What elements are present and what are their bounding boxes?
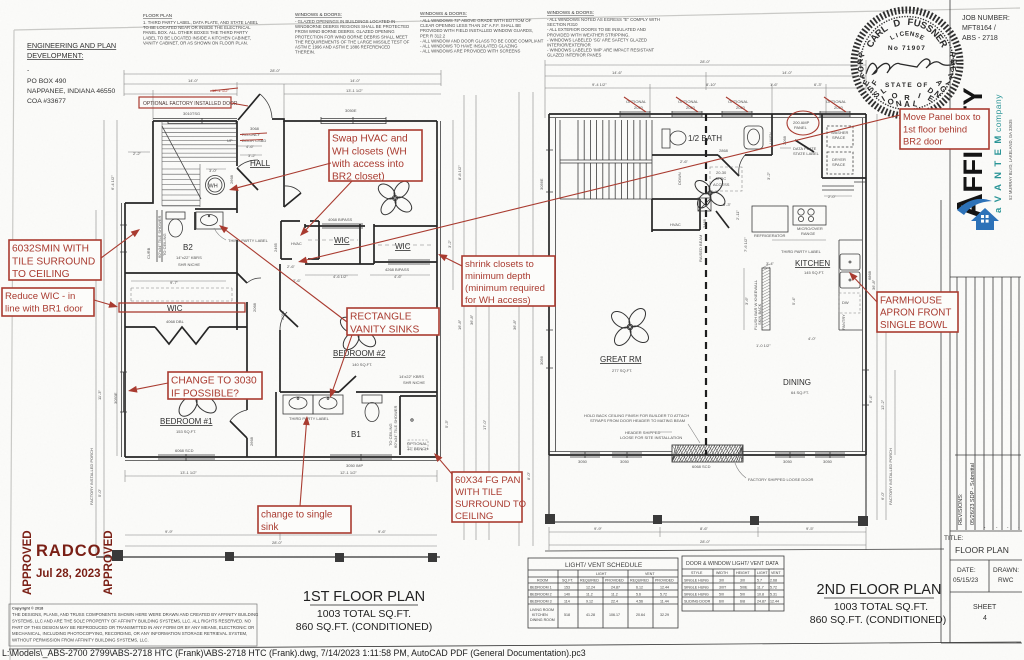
svg-text:20-30: 20-30 [716, 170, 727, 175]
svg-text:145 SQ.FT.: 145 SQ.FT. [804, 270, 824, 275]
svg-text:3/0: 3/0 [740, 579, 745, 583]
svg-text:4268 BIPASS: 4268 BIPASS [385, 267, 409, 272]
svg-text:6'-3": 6'-3" [814, 82, 823, 87]
svg-text:R: R [904, 93, 910, 102]
svg-text:3068: 3068 [250, 126, 260, 131]
svg-text:12'-1 1/2": 12'-1 1/2" [212, 88, 229, 93]
svg-text:LINEN: LINEN [768, 132, 773, 144]
svg-text:BEDROOM #1: BEDROOM #1 [160, 417, 213, 426]
svg-text:3'-6": 3'-6" [744, 296, 749, 305]
svg-text:MECHANICAL, INCLUDING PHOTOCOP: MECHANICAL, INCLUDING PHOTOCOPYING, RECO… [12, 631, 247, 636]
svg-text:6868: 6868 [867, 270, 872, 280]
svg-text:13'-1 1/2": 13'-1 1/2" [180, 470, 197, 475]
svg-text:3050 IMP: 3050 IMP [346, 463, 363, 468]
svg-text:line with BR1 door: line with BR1 door [5, 303, 84, 314]
svg-text:WH: WH [209, 184, 218, 190]
svg-text:2.68: 2.68 [770, 579, 777, 583]
svg-text:RWC: RWC [998, 577, 1014, 584]
svg-text:2668: 2668 [249, 436, 254, 446]
svg-text:8'-10": 8'-10" [706, 82, 717, 87]
svg-text:3'-2": 3'-2" [447, 239, 452, 248]
svg-text:SINGLE HUNG: SINGLE HUNG [684, 586, 709, 590]
svg-text:SQ.FT.: SQ.FT. [562, 579, 573, 583]
svg-text:3/0: 3/0 [719, 579, 724, 583]
svg-text:1'-6": 1'-6" [770, 82, 779, 87]
svg-text:6.12: 6.12 [636, 586, 643, 590]
svg-text:4: 4 [983, 615, 987, 622]
svg-text:DINING ROOM: DINING ROOM [530, 618, 555, 622]
svg-text:12.44: 12.44 [660, 586, 669, 590]
svg-text:*: * [858, 59, 862, 69]
svg-text:41.28: 41.28 [586, 613, 595, 617]
svg-text:3'-3": 3'-3" [723, 202, 732, 207]
svg-text:with access into: with access into [331, 159, 404, 170]
svg-text:JOB NUMBER:: JOB NUMBER: [962, 15, 1010, 22]
svg-text:9'-5": 9'-5" [806, 526, 815, 531]
svg-text:WITHOUT PERMISSION FROM AFFINI: WITHOUT PERMISSION FROM AFFINITY BUILDIN… [12, 638, 149, 643]
svg-text:860 SQ.FT. (CONDITIONED): 860 SQ.FT. (CONDITIONED) [296, 621, 433, 633]
svg-text:FARMHOUSE: FARMHOUSE [880, 295, 943, 306]
svg-text:4.56: 4.56 [636, 600, 643, 604]
svg-text:12'-1 1/2": 12'-1 1/2" [340, 470, 357, 475]
svg-text:CHANGE TO 3030: CHANGE TO 3030 [171, 376, 257, 387]
svg-text:6032SMIN WITH: 6032SMIN WITH [12, 244, 89, 255]
svg-text:STYLE: STYLE [691, 571, 703, 575]
svg-text:SHR NICHE: SHR NICHE [403, 380, 425, 385]
svg-text:3'-4": 3'-4" [766, 261, 775, 266]
svg-text:Reduce WIC - in: Reduce WIC - in [5, 291, 75, 302]
svg-text:8'-6": 8'-6" [700, 526, 709, 531]
svg-text:4'-6": 4'-6" [246, 144, 255, 149]
svg-text:13'-1 1/2": 13'-1 1/2" [346, 88, 363, 93]
svg-text:5.7: 5.7 [757, 579, 762, 583]
svg-text:SURROUND TO: SURROUND TO [455, 499, 526, 510]
svg-text:6068 SCD: 6068 SCD [175, 448, 194, 453]
svg-text:20.64: 20.64 [636, 613, 645, 617]
svg-text:sink: sink [261, 522, 279, 533]
svg-text:14'-0": 14'-0" [782, 70, 793, 75]
svg-text:14'-0": 14'-0" [350, 78, 361, 83]
svg-text:company: company [993, 94, 1003, 132]
svg-text:SLIDING DOOR: SLIDING DOOR [684, 600, 711, 604]
svg-text:IF POSSIBLE?: IF POSSIBLE? [171, 388, 239, 399]
svg-text:4068 BIPASS: 4068 BIPASS [328, 217, 352, 222]
svg-text:3050: 3050 [620, 459, 630, 464]
svg-text:RAISED BEAM: RAISED BEAM [698, 235, 703, 262]
svg-text:6/8: 6/8 [740, 600, 745, 604]
svg-text:BEDROOM 1: BEDROOM 1 [530, 586, 552, 590]
svg-text:HEIGHT: HEIGHT [736, 571, 750, 575]
svg-text:11'-3": 11'-3" [97, 390, 102, 400]
svg-text:L:\Models\_ABS-2700 2799\ABS-2: L:\Models\_ABS-2700 2799\ABS-2718 HTC (F… [2, 648, 586, 658]
svg-text:5'-4": 5'-4" [791, 296, 796, 305]
svg-text:16'-8": 16'-8" [457, 319, 462, 330]
svg-text:2068: 2068 [252, 302, 257, 312]
svg-text:WIC: WIC [334, 236, 350, 245]
svg-text:3056: 3056 [539, 355, 544, 365]
svg-text:2465: 2465 [273, 242, 278, 252]
svg-text:NAPPANEE, INDIANA 46550: NAPPANEE, INDIANA 46550 [27, 88, 115, 95]
svg-text:OPTIONAL: OPTIONAL [826, 99, 847, 104]
svg-text:1'-0 1/2": 1'-0 1/2" [756, 343, 771, 348]
svg-text:TO CEILING: TO CEILING [162, 233, 167, 256]
svg-text:9'-9": 9'-9" [594, 526, 603, 531]
svg-text:BEDROOM 3: BEDROOM 3 [530, 600, 552, 604]
svg-text:GLAZED INTERIOR PANES: GLAZED INTERIOR PANES [547, 53, 601, 58]
svg-text:3'-2": 3'-2" [766, 171, 771, 180]
svg-text:VENT: VENT [771, 571, 781, 575]
svg-text:WH closets (WH: WH closets (WH [332, 146, 407, 157]
svg-text:WIDTH: WIDTH [716, 571, 728, 575]
svg-text:05/15/23: 05/15/23 [953, 577, 979, 584]
svg-text:24.87: 24.87 [757, 600, 766, 604]
svg-text:THIRD PARTY LABEL: THIRD PARTY LABEL [781, 249, 822, 254]
svg-text:CURB: CURB [146, 247, 151, 259]
svg-text:APPROVED: APPROVED [22, 530, 34, 595]
svg-text:36'-8": 36'-8" [871, 279, 876, 290]
svg-text:3050E: 3050E [345, 108, 357, 113]
svg-text:CEILING: CEILING [455, 511, 493, 522]
svg-text:5.31: 5.31 [770, 593, 777, 597]
svg-text:5/0E: 5/0E [740, 586, 748, 590]
svg-text:LOOSE FOR SITE INSTALLATION: LOOSE FOR SITE INSTALLATION [620, 435, 682, 440]
svg-text:DW: DW [842, 300, 849, 305]
svg-text:VANITY SINKS: VANITY SINKS [350, 324, 419, 335]
svg-text:5'-0": 5'-0" [97, 488, 102, 497]
svg-text:11.44: 11.44 [660, 600, 669, 604]
svg-text:4'-0": 4'-0" [808, 336, 817, 341]
svg-text:REFRIGERATOR: REFRIGERATOR [754, 233, 786, 238]
svg-text:6/0: 6/0 [719, 600, 724, 604]
svg-text:12.44: 12.44 [770, 600, 779, 604]
svg-text:STATE LABEL: STATE LABEL [793, 151, 820, 156]
svg-text:3056E: 3056E [539, 178, 544, 190]
svg-text:2050: 2050 [280, 310, 285, 320]
svg-text:2668: 2668 [229, 174, 234, 184]
svg-text:28'-0": 28'-0" [700, 539, 711, 544]
svg-text:HVAC: HVAC [291, 241, 302, 246]
svg-text:14"x22" KBRS: 14"x22" KBRS [176, 255, 202, 260]
svg-text:B2: B2 [183, 243, 193, 252]
svg-text:17'-0": 17'-0" [482, 419, 487, 430]
svg-text:OPTIONAL: OPTIONAL [678, 99, 699, 104]
svg-text:PANTRY: PANTRY [841, 314, 846, 330]
svg-text:FLOOR PLAN: FLOOR PLAN [143, 13, 172, 18]
svg-text:REQUIRED: REQUIRED [580, 579, 599, 583]
svg-text:WIC: WIC [395, 242, 411, 251]
svg-text:DATE:: DATE: [957, 567, 976, 574]
svg-text:OPTIONAL FACTORY INSTALLED DOO: OPTIONAL FACTORY INSTALLED DOOR [143, 101, 238, 107]
svg-text:FACTORY SHIPPED LOOSE DOOR: FACTORY SHIPPED LOOSE DOOR [748, 477, 813, 482]
svg-text:ENGINEERING AND PLAN: ENGINEERING AND PLAN [27, 41, 116, 50]
svg-text:5'-3": 5'-3" [444, 419, 449, 428]
svg-text:12" BENCH: 12" BENCH [407, 446, 428, 451]
svg-text:5/0: 5/0 [740, 593, 745, 597]
svg-text:shrink closets to: shrink closets to [465, 259, 534, 270]
svg-text:9'-4": 9'-4" [868, 394, 873, 403]
svg-text:ROOM: ROOM [537, 579, 548, 583]
svg-text:THEREIN.: THEREIN. [295, 50, 315, 55]
svg-text:11.2: 11.2 [611, 593, 618, 597]
svg-text:60"x34" TILE SHOWER: 60"x34" TILE SHOWER [393, 406, 398, 448]
svg-text:2'-6": 2'-6" [680, 159, 689, 164]
svg-text:6'-0": 6'-0" [880, 491, 885, 500]
svg-text:MFT8164 /: MFT8164 / [962, 25, 996, 32]
svg-text:2ND FLOOR PLAN: 2ND FLOOR PLAN [817, 582, 942, 598]
svg-text:PROVIDED: PROVIDED [655, 579, 674, 583]
svg-text:UP: UP [227, 138, 233, 143]
svg-text:4068 DBL: 4068 DBL [166, 319, 185, 324]
svg-text:SHEET: SHEET [973, 604, 997, 611]
svg-text:APPROVED: APPROVED [103, 530, 115, 595]
svg-text:Swap HVAC and: Swap HVAC and [332, 134, 408, 145]
svg-text:TILE SURROUND: TILE SURROUND [12, 256, 95, 267]
svg-text:WINDOWS & DOORS:: WINDOWS & DOORS: [420, 11, 467, 16]
svg-text:14'x22" KBRS: 14'x22" KBRS [399, 374, 424, 379]
svg-text:KITCHEN: KITCHEN [532, 613, 548, 617]
svg-text:OPTIONAL: OPTIONAL [626, 99, 647, 104]
svg-text:2868: 2868 [719, 148, 729, 153]
svg-text:12.24: 12.24 [586, 586, 595, 590]
svg-text:9'-9": 9'-9" [165, 529, 174, 534]
svg-text:Copyright © 2018: Copyright © 2018 [12, 607, 43, 611]
svg-text:9.12: 9.12 [586, 600, 593, 604]
svg-text:36'-8": 36'-8" [512, 319, 517, 330]
svg-text:11.2: 11.2 [586, 593, 593, 597]
svg-text:12'-2": 12'-2" [880, 399, 885, 410]
svg-text:FLOOR PLAN: FLOOR PLAN [955, 545, 1009, 555]
svg-text:5/0: 5/0 [719, 593, 724, 597]
svg-text:BR2 door: BR2 door [903, 136, 943, 147]
svg-text:64 SQ.FT.: 64 SQ.FT. [791, 390, 809, 395]
svg-text:RANGE: RANGE [801, 231, 816, 236]
svg-text:B1: B1 [351, 430, 361, 439]
svg-text:5.72: 5.72 [770, 586, 777, 590]
svg-text:LIGHT: LIGHT [596, 572, 607, 576]
svg-text:1003 TOTAL SQ.FT.: 1003 TOTAL SQ.FT. [834, 601, 928, 613]
svg-text:7'-6 1/2": 7'-6 1/2" [743, 237, 748, 252]
svg-text:BR2 closet): BR2 closet) [332, 172, 385, 183]
svg-text:change to single: change to single [261, 509, 333, 520]
svg-text:KITCHEN: KITCHEN [795, 259, 830, 268]
svg-text:RECTANGLE: RECTANGLE [350, 312, 412, 323]
svg-text:SHR NICHE: SHR NICHE [178, 262, 200, 267]
svg-text:REVISIONS:: REVISIONS: [958, 493, 964, 525]
svg-text:28'-0": 28'-0" [700, 59, 711, 64]
svg-text:STRAPS FROM DOOR HEADER TO MAT: STRAPS FROM DOOR HEADER TO MATING BEAM [590, 418, 685, 423]
svg-text:a V A N T E M: a V A N T E M [993, 134, 1004, 213]
svg-text:3050: 3050 [823, 459, 833, 464]
svg-text:6'-4 1/2": 6'-4 1/2" [110, 175, 115, 190]
svg-text:3/0T: 3/0T [719, 586, 727, 590]
svg-text:106.17: 106.17 [609, 613, 620, 617]
svg-text:1003 TOTAL SQ.FT.: 1003 TOTAL SQ.FT. [317, 608, 411, 620]
svg-text:SINGLE BOWL: SINGLE BOWL [880, 320, 948, 331]
svg-text:9'-6": 9'-6" [378, 529, 387, 534]
svg-text:- ALL WINDOWS ARE PROVIDED WI: - ALL WINDOWS ARE PROVIDED WITH SCREENS [420, 49, 520, 54]
svg-text:277 SQ.FT.: 277 SQ.FT. [612, 368, 632, 373]
svg-text:Move Panel box to: Move Panel box to [903, 111, 981, 122]
svg-text:153 SQ.FT.: 153 SQ.FT. [176, 429, 196, 434]
svg-text:11.7: 11.7 [757, 586, 764, 590]
svg-text:WIC: WIC [167, 304, 183, 313]
svg-text:PART OF THIS DESIGN MAY BE REP: PART OF THIS DESIGN MAY BE REPRODUCED OR… [12, 625, 254, 630]
svg-text:DEVELOPMENT:: DEVELOPMENT: [27, 51, 83, 60]
svg-text:2'-11": 2'-11" [735, 210, 740, 220]
svg-text:STATE OF: STATE OF [885, 82, 929, 89]
svg-text:HVAC: HVAC [670, 222, 681, 227]
svg-text:518: 518 [564, 613, 570, 617]
svg-text:LIGHT/ VENT SCHEDULE: LIGHT/ VENT SCHEDULE [565, 562, 643, 569]
svg-text:32.29: 32.29 [660, 613, 669, 617]
svg-text:GREAT RM: GREAT RM [600, 355, 642, 364]
svg-text:9'-4 1/2": 9'-4 1/2" [592, 82, 607, 87]
svg-text:WINDOWS & DOORS:: WINDOWS & DOORS: [547, 10, 594, 15]
svg-text:14'-0": 14'-0" [188, 78, 199, 83]
svg-text:DOWN: DOWN [677, 172, 682, 185]
svg-text:VENT: VENT [645, 572, 655, 576]
svg-text:SPACE: SPACE [832, 135, 846, 140]
svg-text:DINING: DINING [783, 378, 811, 387]
svg-text:24.87: 24.87 [611, 586, 620, 590]
svg-text:PANEL: PANEL [794, 125, 808, 130]
svg-text:3010TSG: 3010TSG [183, 111, 200, 116]
svg-text:28'-0": 28'-0" [272, 540, 283, 545]
svg-text:DRAWN:: DRAWN: [993, 567, 1019, 574]
svg-text:BEDROOM #2: BEDROOM #2 [333, 349, 386, 358]
svg-text:LIVING ROOM: LIVING ROOM [530, 608, 554, 612]
svg-text:DOOR & WINDOW LIGHT/ VENT DATA: DOOR & WINDOW LIGHT/ VENT DATA [686, 561, 779, 567]
svg-text:22.4: 22.4 [611, 600, 618, 604]
svg-text:RADCO: RADCO [36, 542, 102, 560]
svg-text:52 MURRAY BLVD, LAKELAND, GA 3: 52 MURRAY BLVD, LAKELAND, GA 33635 [1008, 119, 1013, 200]
svg-text:WINDOWS & DOORS:: WINDOWS & DOORS: [295, 12, 342, 17]
svg-text:2'-6": 2'-6" [287, 264, 296, 269]
svg-text:5.72: 5.72 [660, 593, 667, 597]
svg-text:TO CEILING: TO CEILING [388, 423, 393, 446]
svg-text:VANITY CABINET, OR AS SHOWN ON: VANITY CABINET, OR AS SHOWN ON FLOOR PLA… [143, 40, 248, 45]
svg-text:860 SQ.FT. (CONDITIONED): 860 SQ.FT. (CONDITIONED) [810, 614, 947, 626]
svg-text:3050E: 3050E [113, 392, 118, 404]
svg-text:LIGHT: LIGHT [757, 571, 768, 575]
svg-text:No 71907: No 71907 [888, 45, 926, 52]
svg-text:3050: 3050 [578, 459, 588, 464]
svg-text:TO CEILING: TO CEILING [12, 269, 70, 280]
svg-text:PROVIDED: PROVIDED [605, 579, 624, 583]
svg-text:2'-0": 2'-0" [828, 194, 837, 199]
svg-text:3'-2": 3'-2" [248, 153, 257, 158]
svg-text:for WH access): for WH access) [465, 295, 531, 306]
svg-text:APRON FRONT: APRON FRONT [880, 308, 951, 319]
svg-text:minimum depth: minimum depth [465, 271, 531, 282]
svg-text:2468: 2468 [702, 218, 707, 228]
svg-text:5.6: 5.6 [636, 593, 641, 597]
svg-text:ABS - 2718: ABS - 2718 [962, 35, 998, 42]
svg-text:BEDROOM 2: BEDROOM 2 [530, 593, 552, 597]
svg-text:SINGLE HUNG: SINGLE HUNG [684, 593, 709, 597]
svg-text:Jul 28, 2023: Jul 28, 2023 [36, 568, 101, 580]
svg-text:1ST FLOOR PLAN: 1ST FLOOR PLAN [303, 589, 425, 605]
svg-text:REQUIRED: REQUIRED [630, 579, 649, 583]
svg-text:THIRD PARTY LABEL: THIRD PARTY LABEL [289, 416, 330, 421]
svg-text:FACTORY INSTALLED PORCH: FACTORY INSTALLED PORCH [89, 448, 94, 505]
svg-text:1/2 BATH: 1/2 BATH [688, 134, 722, 143]
svg-text:14'-6": 14'-6" [612, 70, 623, 75]
svg-text:COA #33677: COA #33677 [27, 98, 66, 105]
svg-text:6068 SCD: 6068 SCD [692, 464, 711, 469]
svg-text:THE DESIGNS, PLANS, AND TRUSS: THE DESIGNS, PLANS, AND TRUSS COMPONENTS… [12, 612, 259, 617]
svg-text:140: 140 [564, 593, 570, 597]
svg-text:114: 114 [564, 600, 570, 604]
svg-text:1st floor behind: 1st floor behind [903, 123, 967, 134]
svg-text:8'-8 1/2": 8'-8 1/2" [457, 165, 462, 180]
svg-text:153: 153 [564, 586, 570, 590]
svg-text:(minimum required: (minimum required [465, 283, 545, 294]
svg-text:-: - [27, 67, 29, 74]
svg-text:3050: 3050 [783, 459, 793, 464]
svg-text:OPTIONAL: OPTIONAL [728, 99, 749, 104]
svg-text:36'-8": 36'-8" [469, 314, 474, 325]
svg-text:60X34 FG PAN: 60X34 FG PAN [455, 475, 520, 486]
svg-text:SKIN BACK: SKIN BACK [757, 303, 762, 325]
svg-text:WITH TILE: WITH TILE [455, 487, 502, 498]
svg-text:05/26/23 SDP - Submittal: 05/26/23 SDP - Submittal [970, 463, 976, 525]
svg-text:28'-0": 28'-0" [270, 68, 281, 73]
svg-text:10.8: 10.8 [757, 593, 764, 597]
svg-text:SINGLE HUNG: SINGLE HUNG [684, 579, 709, 583]
svg-text:PO BOX 490: PO BOX 490 [27, 78, 67, 85]
svg-text:TITLE:: TITLE: [944, 535, 964, 542]
svg-text:FACTORY INSTALLED PORCH: FACTORY INSTALLED PORCH [888, 448, 893, 505]
svg-text:SPACE: SPACE [832, 162, 846, 167]
svg-text:140 SQ.FT.: 140 SQ.FT. [352, 362, 372, 367]
svg-text:SYSTEMS, LLC AND ARE THE SOLE: SYSTEMS, LLC AND ARE THE SOLE PROPERTY O… [12, 618, 252, 623]
svg-text:THIRD PARTY LABEL: THIRD PARTY LABEL [228, 238, 269, 243]
svg-text:8'-0": 8'-0" [526, 471, 531, 480]
